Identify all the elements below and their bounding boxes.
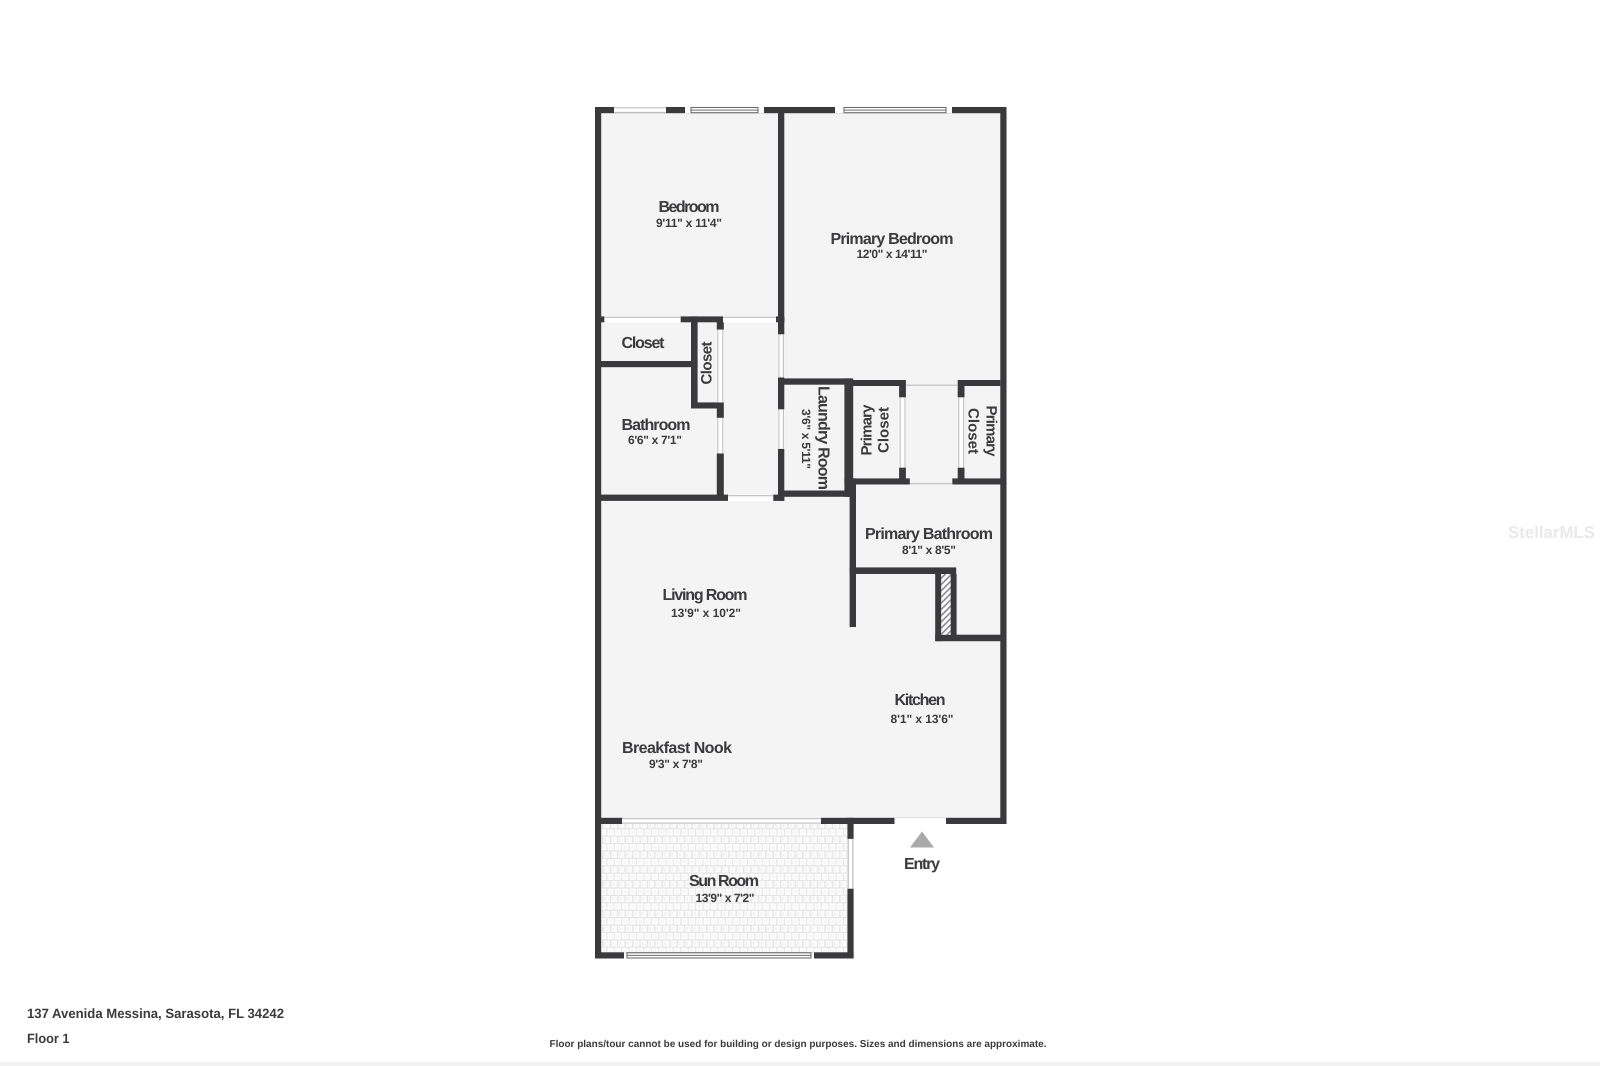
svg-text:Kitchen: Kitchen: [895, 692, 946, 709]
svg-text:Primary Bedroom: Primary Bedroom: [831, 231, 954, 248]
svg-text:Closet: Closet: [876, 407, 893, 453]
svg-text:StellarMLS: StellarMLS: [1508, 523, 1595, 542]
svg-text:Primary: Primary: [859, 404, 876, 456]
svg-text:8'1" x 8'5": 8'1" x 8'5": [902, 543, 956, 557]
svg-text:Breakfast Nook: Breakfast Nook: [622, 740, 732, 757]
svg-text:12'0" x 14'11": 12'0" x 14'11": [857, 247, 928, 261]
svg-text:Laundry Room: Laundry Room: [815, 386, 832, 490]
svg-text:Primary Bathroom: Primary Bathroom: [865, 526, 993, 543]
svg-text:9'11" x 11'4": 9'11" x 11'4": [656, 216, 722, 230]
svg-text:Closet: Closet: [622, 335, 666, 352]
svg-text:Entry: Entry: [904, 856, 940, 873]
svg-text:137 Avenida Messina, Sarasota,: 137 Avenida Messina, Sarasota, FL 34242: [27, 1006, 284, 1021]
svg-text:Living Room: Living Room: [663, 587, 748, 604]
svg-text:9'3" x 7'8": 9'3" x 7'8": [649, 757, 703, 771]
svg-text:8'1" x 13'6": 8'1" x 13'6": [891, 712, 954, 726]
svg-text:Closet: Closet: [965, 408, 982, 454]
svg-text:Sun Room: Sun Room: [689, 873, 759, 890]
svg-text:Closet: Closet: [699, 342, 716, 385]
svg-text:Primary: Primary: [983, 406, 1000, 458]
svg-text:Bedroom: Bedroom: [659, 199, 720, 216]
svg-text:13'9" x 7'2": 13'9" x 7'2": [696, 891, 755, 905]
svg-text:3'6" x 5'11": 3'6" x 5'11": [799, 409, 813, 469]
svg-text:Floor plans/tour cannot be use: Floor plans/tour cannot be used for buil…: [550, 1039, 1047, 1050]
svg-text:13'9" x 10'2": 13'9" x 10'2": [671, 606, 741, 620]
svg-text:6'6" x 7'1": 6'6" x 7'1": [628, 433, 682, 447]
svg-text:Bathroom: Bathroom: [622, 417, 691, 434]
svg-text:Floor 1: Floor 1: [27, 1031, 70, 1046]
